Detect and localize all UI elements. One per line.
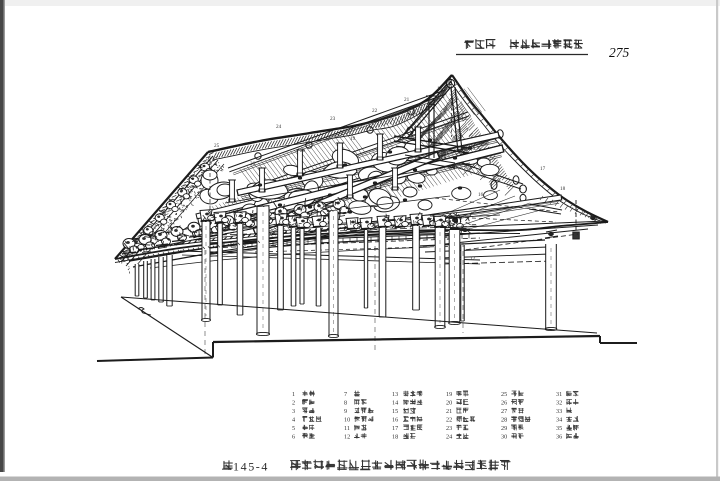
svg-text:32: 32 [556, 400, 562, 407]
svg-text:29: 29 [501, 425, 507, 432]
svg-text:25: 25 [501, 391, 507, 398]
svg-text:6: 6 [292, 434, 295, 441]
svg-text:27: 27 [501, 408, 507, 415]
svg-text:27: 27 [300, 206, 306, 212]
svg-text:12: 12 [344, 434, 350, 441]
svg-text:35: 35 [556, 425, 562, 432]
svg-text:15: 15 [470, 146, 476, 152]
svg-text:13: 13 [437, 86, 443, 92]
svg-text:145-4: 145-4 [233, 460, 269, 474]
svg-text:2: 2 [292, 400, 295, 407]
svg-text:24: 24 [276, 124, 282, 130]
svg-text:1: 1 [292, 391, 295, 398]
svg-text:19: 19 [446, 391, 452, 398]
svg-text:29: 29 [160, 211, 166, 217]
svg-text:33: 33 [556, 408, 562, 415]
svg-text:10: 10 [344, 417, 350, 424]
svg-text:25: 25 [214, 143, 220, 149]
svg-text:26: 26 [501, 400, 507, 407]
svg-text:28: 28 [501, 417, 507, 424]
svg-text:14: 14 [392, 400, 398, 407]
svg-text:17: 17 [392, 425, 398, 432]
svg-text:20: 20 [446, 400, 452, 407]
svg-text:12: 12 [470, 256, 476, 262]
svg-text:16: 16 [478, 192, 484, 198]
svg-text:8: 8 [344, 400, 347, 407]
svg-text:9: 9 [344, 408, 347, 415]
svg-text:7: 7 [344, 391, 347, 398]
svg-text:21: 21 [446, 408, 452, 415]
svg-text:18: 18 [392, 434, 398, 441]
svg-text:31: 31 [556, 391, 562, 398]
svg-text:17: 17 [540, 166, 546, 172]
svg-text:19: 19 [350, 136, 356, 142]
svg-text:20: 20 [300, 148, 306, 154]
svg-text:3: 3 [292, 408, 295, 415]
svg-text:34: 34 [556, 417, 562, 424]
svg-text:4: 4 [292, 417, 295, 424]
svg-text:15: 15 [392, 408, 398, 415]
svg-text:24: 24 [446, 434, 452, 441]
svg-text:23: 23 [446, 425, 452, 432]
svg-text:22: 22 [446, 417, 452, 424]
svg-text:26: 26 [250, 161, 256, 167]
svg-text:22: 22 [372, 108, 378, 114]
svg-text:275: 275 [609, 45, 630, 60]
svg-text:14: 14 [458, 116, 464, 122]
svg-text:36: 36 [556, 434, 562, 441]
svg-text:21: 21 [404, 97, 410, 103]
svg-text:5: 5 [292, 425, 295, 432]
svg-text:30: 30 [501, 434, 507, 441]
svg-text:28: 28 [180, 196, 186, 202]
svg-text:23: 23 [330, 116, 336, 122]
svg-text:18: 18 [560, 186, 566, 192]
svg-text:13: 13 [392, 391, 398, 398]
svg-text:16: 16 [392, 417, 398, 424]
svg-text:11: 11 [344, 425, 350, 432]
